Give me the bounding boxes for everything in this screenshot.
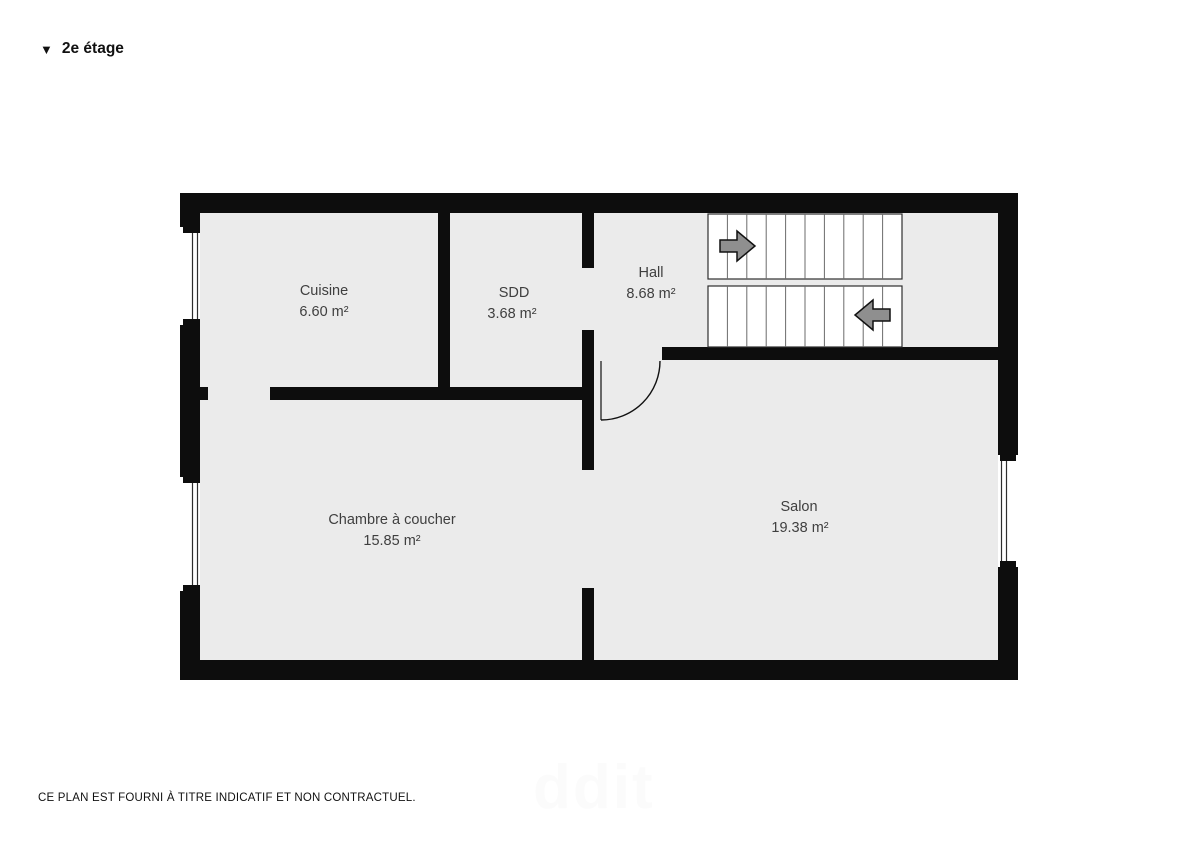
window-left-lower <box>180 477 200 591</box>
wall-chambre-salon-lower <box>582 588 594 660</box>
disclaimer-text: CE PLAN EST FOURNI À TITRE INDICATIF ET … <box>38 792 416 804</box>
wall-partition-nub <box>200 387 208 400</box>
room-area-hall: 8.68 m² <box>626 286 675 302</box>
wall-right <box>998 193 1018 680</box>
watermark: ddit <box>533 752 655 823</box>
room-label-chambre: Chambre à coucher <box>328 512 456 528</box>
room-label-salon: Salon <box>780 499 817 515</box>
room-area-chambre: 15.85 m² <box>363 533 420 549</box>
room-area-salon: 19.38 m² <box>771 520 828 536</box>
wall-top <box>180 193 1018 213</box>
wall-partition-horizontal <box>270 387 594 400</box>
wall-hall-chambre <box>582 330 594 470</box>
floor-plan: Cuisine 6.60 m² SDD 3.68 m² Hall 8.68 m²… <box>0 0 1200 848</box>
wall-cuisine-sdd <box>438 213 450 400</box>
wall-bottom <box>180 660 1018 680</box>
room-area-cuisine: 6.60 m² <box>299 304 348 320</box>
window-left-upper <box>180 227 200 325</box>
wall-salon-top <box>662 347 998 360</box>
room-label-hall: Hall <box>639 265 664 281</box>
room-label-sdd: SDD <box>499 285 530 301</box>
window-right <box>998 455 1018 567</box>
wall-sdd-hall <box>582 213 594 268</box>
room-label-cuisine: Cuisine <box>300 283 348 299</box>
room-area-sdd: 3.68 m² <box>487 306 536 322</box>
